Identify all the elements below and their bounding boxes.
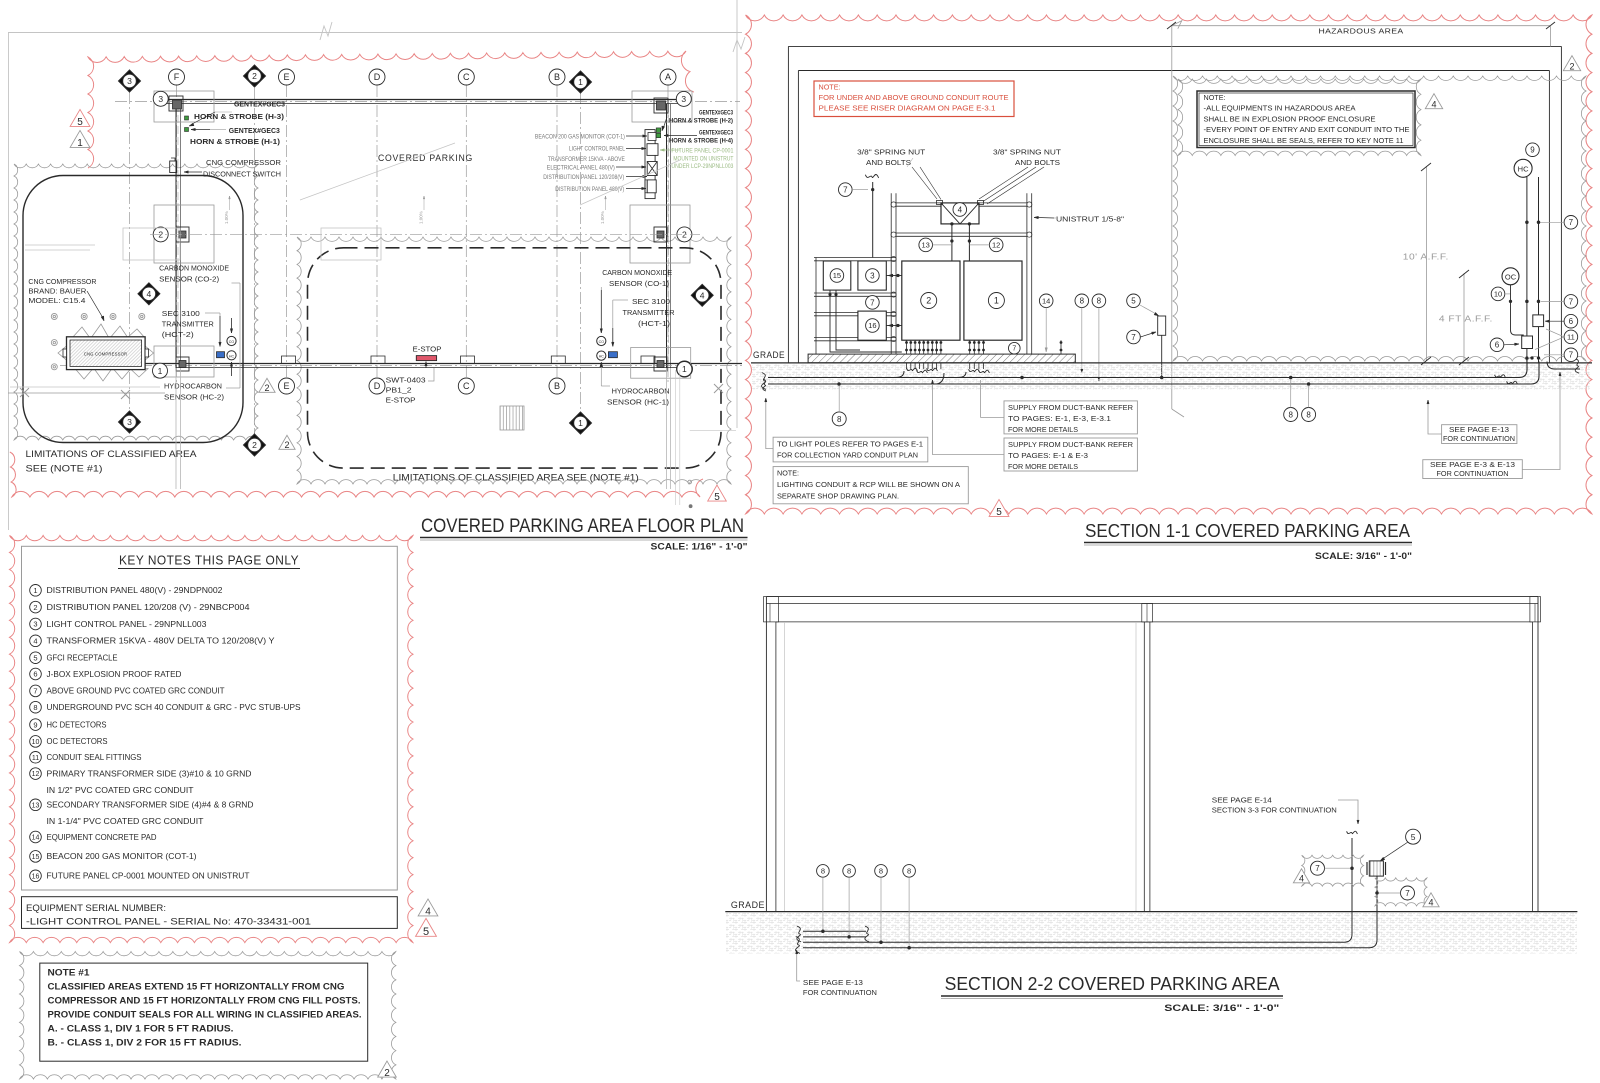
svg-text:8: 8 (847, 867, 851, 876)
svg-text:9: 9 (33, 720, 37, 729)
svg-text:C: C (463, 72, 470, 82)
svg-text:OC DETECTORS: OC DETECTORS (47, 737, 109, 746)
svg-text:LIMITATIONS OF CLASSIFIED AREA: LIMITATIONS OF CLASSIFIED AREA (26, 449, 198, 460)
svg-text:HC DETECTORS: HC DETECTORS (47, 720, 107, 729)
svg-text:8: 8 (1080, 297, 1085, 306)
svg-text:6: 6 (33, 670, 37, 679)
svg-text:CARBON MONOXIDE: CARBON MONOXIDE (602, 268, 672, 277)
svg-text:8: 8 (821, 867, 825, 876)
svg-text:4: 4 (1428, 898, 1433, 908)
svg-text:COVERED PARKING: COVERED PARKING (378, 153, 473, 164)
svg-text:1.00%: 1.00% (419, 211, 424, 224)
svg-text:3: 3 (870, 271, 875, 280)
svg-text:13: 13 (922, 241, 930, 250)
svg-text:E: E (283, 72, 289, 82)
svg-text:14: 14 (1042, 297, 1050, 306)
svg-text:2: 2 (384, 1068, 390, 1079)
svg-text:GENTEX#GEC3: GENTEX#GEC3 (699, 130, 733, 137)
svg-text:NOTE:: NOTE: (777, 468, 799, 477)
svg-text:SECTION 2-2 COVERED PARKING AR: SECTION 2-2 COVERED PARKING AREA (945, 973, 1281, 994)
svg-text:SEPARATE SHOP DRAWING PLAN.: SEPARATE SHOP DRAWING PLAN. (777, 491, 899, 500)
svg-text:MOUNTED ON UNISTRUT: MOUNTED ON UNISTRUT (673, 155, 733, 162)
svg-text:SENSOR (HC-2): SENSOR (HC-2) (164, 392, 224, 401)
svg-text:3: 3 (127, 76, 132, 86)
svg-text:FOR MORE DETAILS: FOR MORE DETAILS (1008, 425, 1078, 434)
svg-text:SEC 3100: SEC 3100 (632, 297, 670, 306)
svg-text:1.00%: 1.00% (224, 211, 229, 224)
svg-text:FOR CONTINUATION: FOR CONTINUATION (803, 988, 877, 997)
svg-text:5: 5 (714, 492, 720, 503)
svg-text:5: 5 (996, 507, 1002, 518)
svg-text:FUTURE PANEL CP-0001: FUTURE PANEL CP-0001 (671, 148, 733, 155)
svg-text:SUPPLY FROM DUCT-BANK REFER: SUPPLY FROM DUCT-BANK REFER (1008, 440, 1133, 449)
svg-text:15: 15 (833, 271, 841, 280)
svg-text:IN 1-1/4" PVC COATED GRC CONDU: IN 1-1/4" PVC COATED GRC CONDUIT (47, 817, 204, 826)
svg-text:SWT-0403: SWT-0403 (386, 376, 426, 385)
svg-text:7: 7 (1315, 864, 1320, 873)
svg-text:HC: HC (599, 355, 605, 359)
svg-text:CLASSIFIED AREAS EXTEND 15 FT: CLASSIFIED AREAS EXTEND 15 FT HORIZONTAL… (48, 982, 345, 993)
svg-text:SECTION 1-1 COVERED PARKING AR: SECTION 1-1 COVERED PARKING AREA (1085, 520, 1411, 541)
svg-text:LIMITATIONS OF CLASSIFIED AREA: LIMITATIONS OF CLASSIFIED AREA SEE (NOTE… (393, 473, 639, 484)
svg-text:B: B (554, 381, 560, 391)
svg-text:2: 2 (926, 296, 931, 306)
svg-text:CNG COMPRESSOR: CNG COMPRESSOR (84, 351, 128, 356)
svg-text:9: 9 (1530, 146, 1535, 155)
svg-text:UNISTRUT 1/5-8": UNISTRUT 1/5-8" (1056, 215, 1124, 224)
svg-text:SECONDARY TRANSFORMER SIDE (4): SECONDARY TRANSFORMER SIDE (4)#4 & 8 GRN… (47, 801, 254, 810)
svg-text:8: 8 (33, 703, 37, 712)
svg-text:GFCI RECEPTACLE: GFCI RECEPTACLE (47, 654, 118, 663)
svg-text:SEE PAGE E-14: SEE PAGE E-14 (1212, 796, 1272, 805)
svg-text:4: 4 (425, 907, 431, 918)
svg-text:BEACON 200 GAS MONITOR (COT-1): BEACON 200 GAS MONITOR (COT-1) (47, 852, 197, 861)
svg-text:-LIGHT CONTROL PANEL - SERIAL: -LIGHT CONTROL PANEL - SERIAL No: 470-33… (26, 916, 311, 926)
svg-text:TRANSFORMER 15KVA - 480V DELTA: TRANSFORMER 15KVA - 480V DELTA TO 120/20… (47, 637, 276, 646)
svg-text:FOR CONTINUATION: FOR CONTINUATION (1443, 434, 1515, 443)
svg-text:SEE PAGE E-13: SEE PAGE E-13 (1449, 425, 1509, 434)
svg-text:PB1_2: PB1_2 (386, 386, 412, 395)
svg-text:SEC 3100: SEC 3100 (162, 309, 200, 318)
svg-text:UNDERGROUND PVC SCH 40 CONDUIT: UNDERGROUND PVC SCH 40 CONDUIT & GRC - P… (47, 703, 302, 712)
svg-text:DISTRIBUTION PANEL 120/208 (V): DISTRIBUTION PANEL 120/208 (V) - 29NBCP0… (47, 603, 250, 612)
svg-text:SHALL BE IN EXPLOSION PROOF EN: SHALL BE IN EXPLOSION PROOF ENCLOSURE (1204, 114, 1376, 123)
svg-text:E-STOP: E-STOP (413, 345, 442, 354)
svg-text:4 FT A.F.F.: 4 FT A.F.F. (1439, 314, 1493, 324)
svg-text:OC: OC (1505, 272, 1517, 281)
svg-text:FOR MORE DETAILS: FOR MORE DETAILS (1008, 462, 1078, 471)
svg-text:D: D (374, 72, 381, 82)
svg-text:7: 7 (1569, 218, 1574, 227)
svg-text:16: 16 (32, 873, 40, 880)
svg-text:CARBON MONOXIDE: CARBON MONOXIDE (159, 264, 229, 273)
svg-text:GENTEX#GEC3: GENTEX#GEC3 (699, 110, 733, 117)
svg-text:ABOVE GROUND PVC COATED GRC CO: ABOVE GROUND PVC COATED GRC CONDUIT (47, 687, 225, 696)
svg-text:COMPRESSOR AND 15 FT HORIZONTA: COMPRESSOR AND 15 FT HORIZONTALLY FROM C… (48, 996, 361, 1007)
svg-text:2: 2 (264, 383, 269, 393)
svg-text:12: 12 (992, 241, 1000, 250)
svg-text:DISCONNECT SWITCH: DISCONNECT SWITCH (203, 170, 281, 179)
svg-text:8: 8 (1097, 297, 1102, 306)
svg-text:AND BOLTS: AND BOLTS (1015, 158, 1060, 167)
svg-text:HYDROCARBON: HYDROCARBON (612, 387, 670, 396)
svg-text:TO PAGES: E-1 & E-3: TO PAGES: E-1 & E-3 (1008, 451, 1088, 460)
svg-text:SCALE: 3/16" - 1'-0": SCALE: 3/16" - 1'-0" (1315, 551, 1412, 561)
svg-text:IN 1/2" PVC COATED GRC CONDUIT: IN 1/2" PVC COATED GRC CONDUIT (47, 786, 194, 795)
svg-text:7: 7 (33, 687, 37, 696)
svg-text:LIGHT CONTROL PANEL: LIGHT CONTROL PANEL (569, 146, 625, 153)
svg-text:(HCT-1): (HCT-1) (638, 319, 670, 328)
svg-text:SENSOR (CO-2): SENSOR (CO-2) (159, 275, 219, 284)
svg-text:BRAND: BAUER: BRAND: BAUER (28, 287, 86, 296)
svg-text:1: 1 (33, 586, 37, 595)
svg-text:F: F (174, 72, 180, 82)
svg-text:GRADE: GRADE (731, 900, 765, 911)
svg-text:TRANSMITTER: TRANSMITTER (623, 308, 675, 317)
svg-text:CO: CO (229, 340, 235, 344)
svg-text:CONDUIT SEAL FITTINGS: CONDUIT SEAL FITTINGS (47, 753, 143, 762)
svg-text:14: 14 (32, 835, 40, 842)
svg-text:A: A (665, 72, 671, 82)
svg-text:2: 2 (1569, 62, 1574, 72)
svg-text:KEY NOTES THIS PAGE ONLY: KEY NOTES THIS PAGE ONLY (119, 554, 299, 568)
svg-text:-EVERY POINT OF ENTRY AND EXIT: -EVERY POINT OF ENTRY AND EXIT CONDUIT I… (1204, 125, 1410, 134)
svg-text:FOR UNDER AND ABOVE GROUND CON: FOR UNDER AND ABOVE GROUND CONDUIT ROUTE (819, 93, 1009, 102)
svg-text:4: 4 (958, 205, 963, 214)
svg-text:3/8" SPRING NUT: 3/8" SPRING NUT (857, 148, 926, 157)
svg-text:4: 4 (1431, 100, 1436, 110)
svg-text:5: 5 (33, 653, 37, 662)
svg-text:TRANSFORMER 15KVA - ABOVE: TRANSFORMER 15KVA - ABOVE (548, 156, 625, 163)
svg-text:SCALE: 1/16" - 1'-0": SCALE: 1/16" - 1'-0" (651, 542, 748, 552)
svg-text:EQUIPMENT SERIAL NUMBER:: EQUIPMENT SERIAL NUMBER: (26, 903, 166, 913)
svg-text:-ALL EQUIPMENTS IN HAZARDOUS A: -ALL EQUIPMENTS IN HAZARDOUS AREA (1204, 104, 1356, 113)
svg-text:CNG COMPRESSOR: CNG COMPRESSOR (206, 158, 281, 167)
svg-text:7: 7 (1131, 333, 1136, 342)
svg-text:3: 3 (681, 94, 686, 104)
svg-text:J-BOX EXPLOSION PROOF RATED: J-BOX EXPLOSION PROOF RATED (47, 670, 182, 679)
svg-text:3: 3 (127, 417, 132, 427)
svg-text:SEE (NOTE #1): SEE (NOTE #1) (26, 464, 103, 475)
svg-text:11: 11 (1567, 333, 1575, 342)
svg-text:E: E (283, 381, 289, 391)
svg-text:HORN & STROBE (H-4): HORN & STROBE (H-4) (669, 138, 733, 145)
svg-text:UNDER LCP-29NPNLL003: UNDER LCP-29NPNLL003 (671, 163, 733, 170)
svg-text:11: 11 (32, 755, 39, 762)
svg-text:B. - CLASS 1, DIV 2 FOR 15 FT: B. - CLASS 1, DIV 2 FOR 15 FT RADIUS. (48, 1038, 242, 1049)
svg-text:ELECTRICAL PANEL 480(V): ELECTRICAL PANEL 480(V) (547, 164, 615, 171)
svg-text:4: 4 (147, 289, 152, 299)
svg-text:HAZARDOUS AREA: HAZARDOUS AREA (1319, 27, 1404, 36)
svg-text:NOTE:: NOTE: (1204, 93, 1226, 102)
svg-text:MODEL: C15.4: MODEL: C15.4 (28, 296, 85, 305)
svg-text:1: 1 (578, 77, 583, 87)
svg-text:FOR CONTINUATION: FOR CONTINUATION (1437, 469, 1509, 478)
svg-text:7: 7 (870, 298, 875, 307)
svg-text:4: 4 (1299, 874, 1304, 884)
svg-text:SUPPLY FROM DUCT-BANK REFER: SUPPLY FROM DUCT-BANK REFER (1008, 403, 1133, 412)
svg-text:LIGHT CONTROL PANEL - 29NPNLL0: LIGHT CONTROL PANEL - 29NPNLL003 (47, 620, 207, 629)
svg-text:2: 2 (252, 440, 257, 450)
svg-text:CNG COMPRESSOR: CNG COMPRESSOR (28, 277, 96, 286)
svg-text:5: 5 (423, 926, 429, 938)
svg-text:HORN & STROBE (H-3): HORN & STROBE (H-3) (194, 114, 284, 121)
svg-text:ENCLOSURE SHALL BE SEALS, REFE: ENCLOSURE SHALL BE SEALS, REFER TO KEY N… (1204, 136, 1404, 145)
svg-text:TO LIGHT POLES REFER TO PAGES: TO LIGHT POLES REFER TO PAGES E-1 (777, 439, 923, 448)
svg-text:C: C (463, 381, 470, 391)
svg-text:6: 6 (1569, 317, 1574, 326)
svg-text:3: 3 (33, 620, 37, 629)
svg-text:TRANSMITTER: TRANSMITTER (162, 320, 214, 329)
svg-text:2: 2 (252, 71, 257, 81)
svg-text:A. - CLASS 1, DIV 1 FOR 5 FT R: A. - CLASS 1, DIV 1 FOR 5 FT RADIUS. (48, 1024, 234, 1035)
svg-text:HC: HC (229, 354, 235, 358)
svg-text:2: 2 (33, 603, 37, 612)
svg-text:PLEASE SEE RISER DIAGRAM ON PA: PLEASE SEE RISER DIAGRAM ON PAGE E-3.1 (819, 104, 996, 113)
svg-text:NOTE #1: NOTE #1 (48, 968, 91, 979)
svg-text:HORN & STROBE (H-1): HORN & STROBE (H-1) (190, 139, 280, 146)
svg-text:PROVIDE CONDUIT SEALS FOR ALL: PROVIDE CONDUIT SEALS FOR ALL WIRING IN … (48, 1010, 362, 1021)
svg-text:8: 8 (1306, 410, 1311, 419)
svg-text:1: 1 (994, 296, 999, 306)
svg-text:GRADE: GRADE (753, 350, 785, 361)
svg-text:10: 10 (32, 739, 40, 746)
svg-text:TO PAGES: E-1, E-3, E-3.1: TO PAGES: E-1, E-3, E-3.1 (1008, 414, 1111, 423)
svg-text:DISTRIBUTION PANEL 480(V) - 29: DISTRIBUTION PANEL 480(V) - 29NDPN002 (47, 586, 223, 595)
svg-text:1: 1 (682, 364, 687, 374)
svg-text:4: 4 (700, 290, 705, 300)
svg-text:8: 8 (837, 415, 842, 424)
svg-text:7: 7 (843, 185, 848, 194)
svg-text:4: 4 (33, 637, 37, 646)
svg-text:3: 3 (158, 94, 163, 104)
svg-text:1: 1 (578, 418, 583, 428)
svg-text:7: 7 (1405, 889, 1410, 898)
svg-text:SENSOR (HC-1): SENSOR (HC-1) (607, 398, 669, 407)
svg-text:2: 2 (284, 440, 289, 450)
svg-text:8: 8 (1288, 410, 1293, 419)
svg-text:COVERED PARKING AREA FLOOR PLA: COVERED PARKING AREA FLOOR PLAN (421, 515, 744, 537)
svg-text:1: 1 (158, 366, 163, 376)
svg-text:5: 5 (1131, 297, 1136, 306)
svg-text:6: 6 (1495, 341, 1500, 350)
svg-text:GENTEX#GEC3: GENTEX#GEC3 (229, 128, 280, 135)
svg-text:E-STOP: E-STOP (386, 396, 416, 405)
svg-text:B: B (554, 72, 560, 82)
svg-text:SEE PAGE E-13: SEE PAGE E-13 (803, 978, 863, 987)
svg-text:SCALE: 3/16" - 1'-0": SCALE: 3/16" - 1'-0" (1164, 1003, 1279, 1013)
svg-text:NOTE:: NOTE: (819, 83, 841, 92)
svg-text:EQUIPMENT CONCRETE PAD: EQUIPMENT CONCRETE PAD (47, 833, 157, 842)
svg-text:3/8" SPRING NUT: 3/8" SPRING NUT (993, 148, 1062, 157)
svg-text:5: 5 (1411, 832, 1416, 842)
svg-text:7: 7 (1569, 297, 1574, 306)
svg-text:GENTEX#GEC3: GENTEX#GEC3 (234, 102, 285, 109)
svg-text:LIGHTING CONDUIT & RCP WILL BE: LIGHTING CONDUIT & RCP WILL BE SHOWN ON … (777, 480, 960, 489)
svg-text:AND BOLTS: AND BOLTS (866, 158, 911, 167)
svg-text:12: 12 (32, 771, 40, 778)
svg-text:PRIMARY TRANSFORMER SIDE (3)#1: PRIMARY TRANSFORMER SIDE (3)#10 & 10 GRN… (47, 769, 252, 778)
svg-text:HYDROCARBON: HYDROCARBON (164, 382, 222, 391)
svg-text:DISTRIBUTION PANEL 120/208(V): DISTRIBUTION PANEL 120/208(V) (543, 174, 624, 181)
svg-text:8: 8 (879, 867, 883, 876)
svg-text:10' A.F.F.: 10' A.F.F. (1403, 252, 1449, 262)
svg-text:8: 8 (907, 867, 911, 876)
svg-text:SECTION 3-3 FOR CONTINUATION: SECTION 3-3 FOR CONTINUATION (1212, 806, 1337, 815)
svg-text:SENSOR (CO-1): SENSOR (CO-1) (609, 279, 669, 288)
svg-text:16: 16 (868, 321, 876, 330)
svg-text:1: 1 (77, 138, 83, 149)
svg-text:HC: HC (1518, 164, 1529, 173)
svg-text:13: 13 (32, 802, 40, 809)
svg-text:5: 5 (77, 117, 83, 128)
svg-text:BEACON 200 GAS MONITOR (COT-1): BEACON 200 GAS MONITOR (COT-1) (535, 134, 625, 141)
svg-text:7: 7 (1012, 346, 1016, 353)
svg-text:D: D (374, 381, 381, 391)
svg-text:HORN & STROBE (H-2): HORN & STROBE (H-2) (669, 118, 733, 125)
svg-text:CO: CO (599, 340, 605, 344)
svg-text:FOR COLLECTION YARD CONDUIT PL: FOR COLLECTION YARD CONDUIT PLAN (777, 451, 918, 460)
svg-text:SEE PAGE E-3 & E-13: SEE PAGE E-3 & E-13 (1430, 460, 1515, 469)
svg-text:1.00%: 1.00% (600, 211, 605, 224)
svg-text:15: 15 (32, 854, 40, 861)
svg-text:10: 10 (1494, 290, 1502, 299)
svg-text:(HCT-2): (HCT-2) (162, 330, 194, 339)
svg-text:7: 7 (1569, 351, 1574, 360)
svg-text:FUTURE PANEL CP-0001 MOUNTED O: FUTURE PANEL CP-0001 MOUNTED ON UNISTRUT (47, 872, 250, 881)
